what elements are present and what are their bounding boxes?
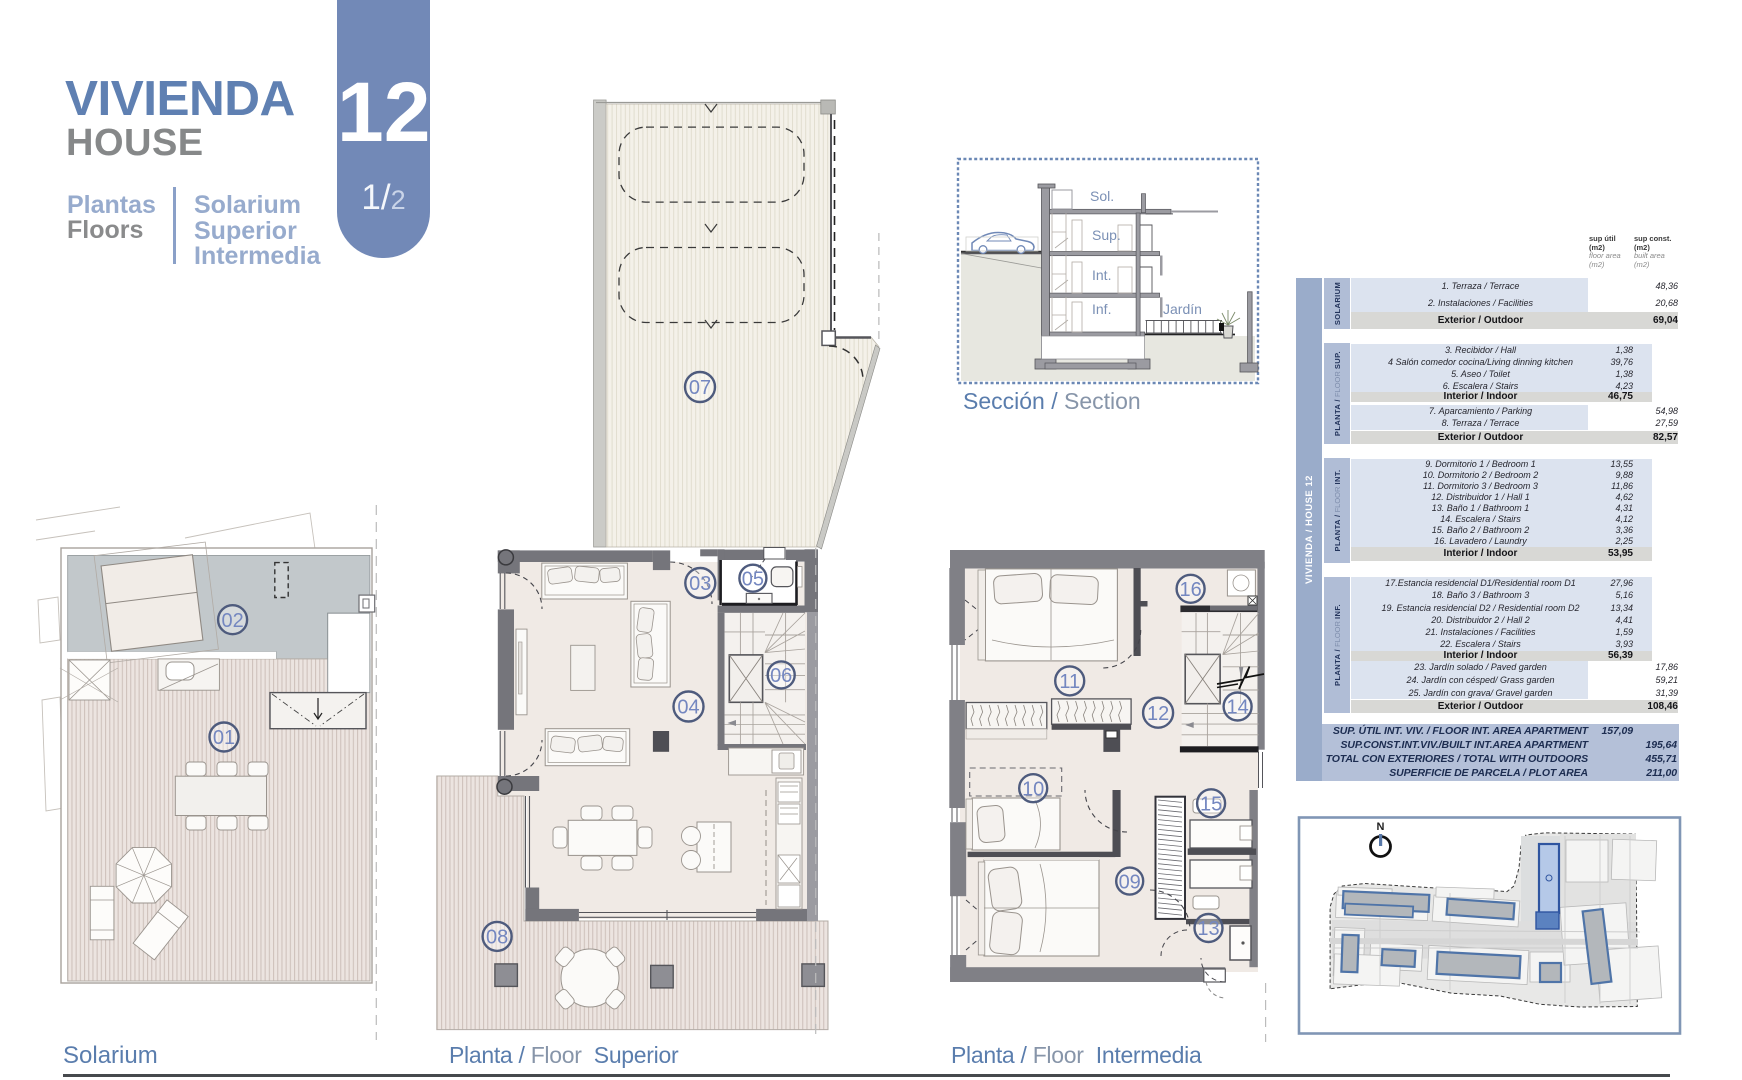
svg-text:02: 02	[221, 610, 243, 632]
svg-text:03: 03	[689, 573, 711, 595]
svg-text:Sup.: Sup.	[1092, 227, 1121, 243]
svg-text:14: 14	[1226, 697, 1248, 719]
svg-text:10: 10	[1022, 778, 1044, 800]
svg-text:01: 01	[213, 727, 235, 749]
svg-text:11: 11	[1059, 671, 1080, 693]
svg-text:07: 07	[689, 377, 711, 399]
svg-text:Jardín: Jardín	[1163, 301, 1202, 317]
svg-text:13: 13	[1197, 918, 1219, 940]
svg-text:Inf.: Inf.	[1092, 301, 1111, 317]
svg-text:05: 05	[742, 568, 764, 590]
svg-text:16: 16	[1179, 579, 1201, 601]
svg-text:06: 06	[770, 665, 792, 687]
svg-text:N: N	[1377, 821, 1385, 833]
svg-text:Sol.: Sol.	[1090, 188, 1114, 204]
svg-text:Int.: Int.	[1092, 267, 1111, 283]
svg-text:15: 15	[1200, 794, 1222, 816]
svg-text:04: 04	[677, 697, 699, 719]
svg-text:08: 08	[486, 927, 508, 949]
svg-text:09: 09	[1119, 871, 1141, 893]
svg-text:12: 12	[1147, 703, 1169, 725]
